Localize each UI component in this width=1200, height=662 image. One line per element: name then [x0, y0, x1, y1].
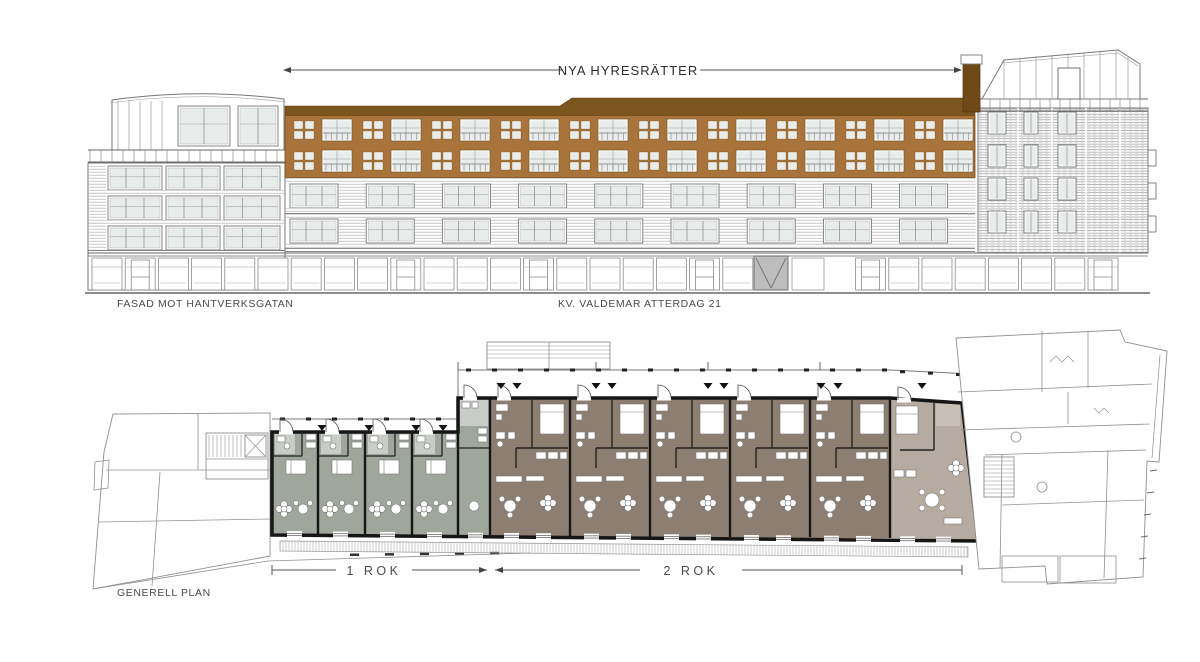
plan-right-building: [956, 330, 1167, 584]
floor-plan: [93, 330, 1167, 589]
facade-new-addition: [285, 98, 975, 178]
facade-existing-floors: [285, 178, 976, 252]
dim-label-2rok: 2 ROK: [663, 564, 718, 578]
facade-storefront: [85, 253, 1150, 293]
architectural-drawing-sheet: NYA HYRESRÄTTER FASAD MOT HANTVERKSGATAN…: [0, 0, 1200, 662]
facade-right-building: [961, 50, 1156, 253]
block-caption: KV. VALDEMAR ATTERDAG 21: [558, 298, 722, 310]
dim-label-1rok: 1 ROK: [346, 564, 401, 578]
plan-caption: GENERELL PLAN: [117, 587, 211, 599]
facade-caption: FASAD MOT HANTVERKSGATAN: [117, 298, 294, 310]
drawing-svg: NYA HYRESRÄTTER FASAD MOT HANTVERKSGATAN…: [0, 0, 1200, 662]
new-rentals-annotation: NYA HYRESRÄTTER: [558, 63, 698, 78]
facade-elevation: [85, 50, 1156, 293]
